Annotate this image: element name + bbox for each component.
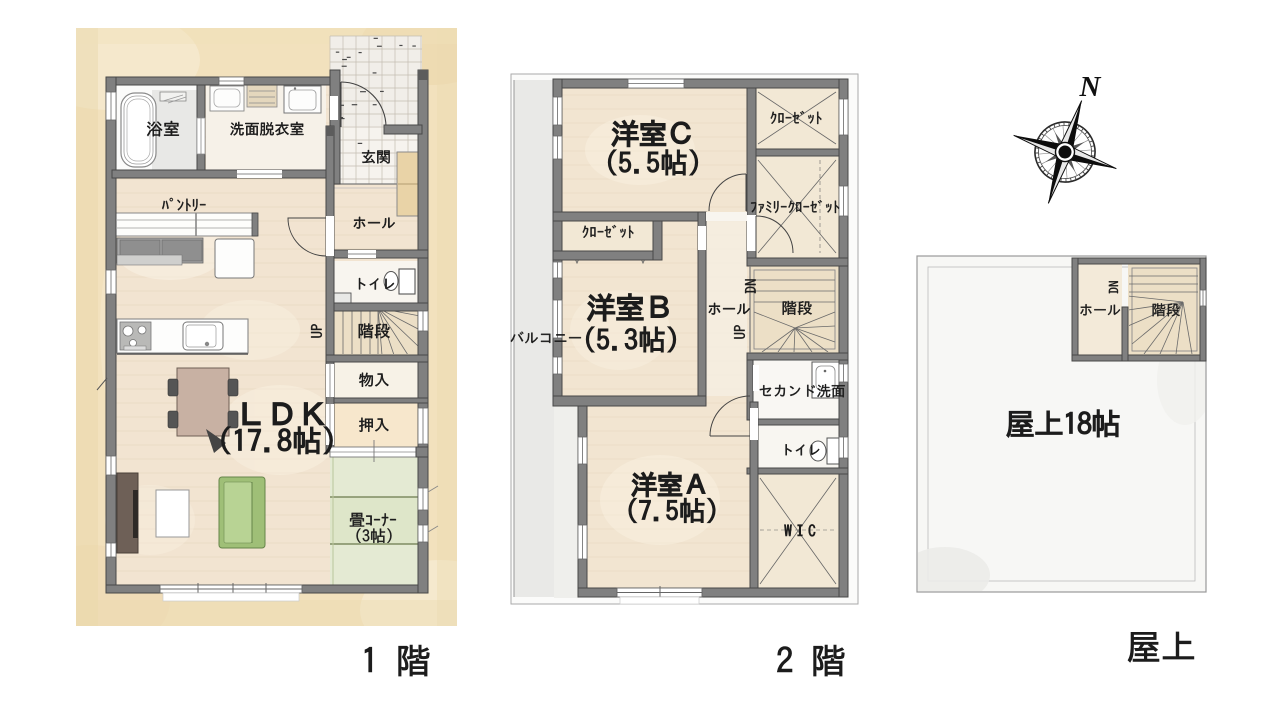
svg-text:N: N [1079,71,1102,103]
